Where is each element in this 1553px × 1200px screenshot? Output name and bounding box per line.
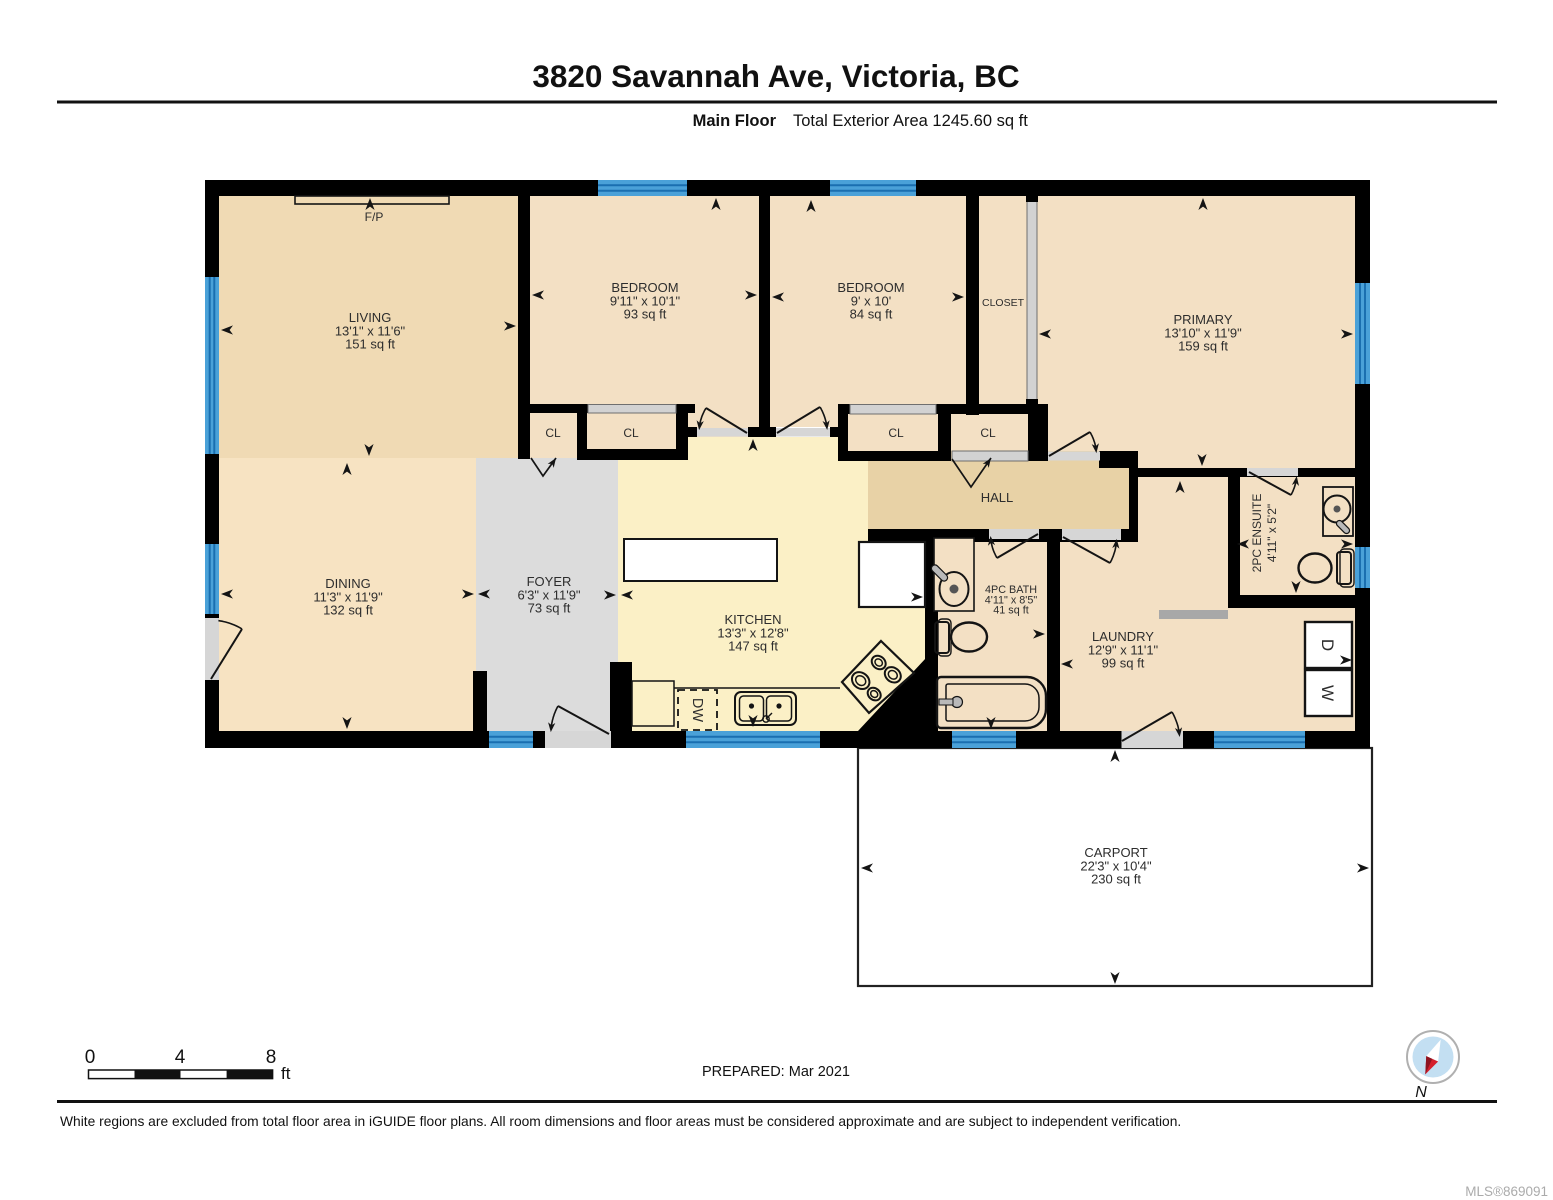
svg-text:CL: CL	[545, 426, 561, 440]
svg-text:Total Exterior Area 1245.60 sq: Total Exterior Area 1245.60 sq ft	[793, 112, 1028, 130]
svg-text:DW: DW	[689, 698, 705, 722]
svg-text:White regions are excluded fro: White regions are excluded from total fl…	[60, 1114, 1181, 1129]
svg-text:ft: ft	[281, 1064, 291, 1083]
svg-text:8: 8	[266, 1047, 277, 1068]
svg-text:0: 0	[85, 1047, 96, 1068]
svg-text:Main Floor: Main Floor	[693, 112, 777, 130]
svg-text:F/P: F/P	[365, 210, 384, 224]
svg-text:CLOSET: CLOSET	[982, 297, 1025, 309]
svg-text:MLS®869091: MLS®869091	[1465, 1184, 1548, 1199]
svg-text:CL: CL	[623, 426, 639, 440]
svg-text:W: W	[1318, 685, 1337, 701]
svg-text:3820 Savannah Ave, Victoria, B: 3820 Savannah Ave, Victoria, BC	[532, 58, 1019, 94]
svg-text:CL: CL	[888, 426, 904, 440]
svg-text:D: D	[1318, 639, 1337, 651]
svg-text:CL: CL	[980, 426, 996, 440]
svg-text:N: N	[1415, 1084, 1427, 1101]
svg-text:HALL: HALL	[981, 490, 1014, 505]
svg-text:PREPARED: Mar 2021: PREPARED: Mar 2021	[702, 1064, 850, 1080]
svg-text:4: 4	[175, 1047, 186, 1068]
svg-text:2PC ENSUITE4'11" x 5'2": 2PC ENSUITE4'11" x 5'2"	[1250, 494, 1279, 573]
